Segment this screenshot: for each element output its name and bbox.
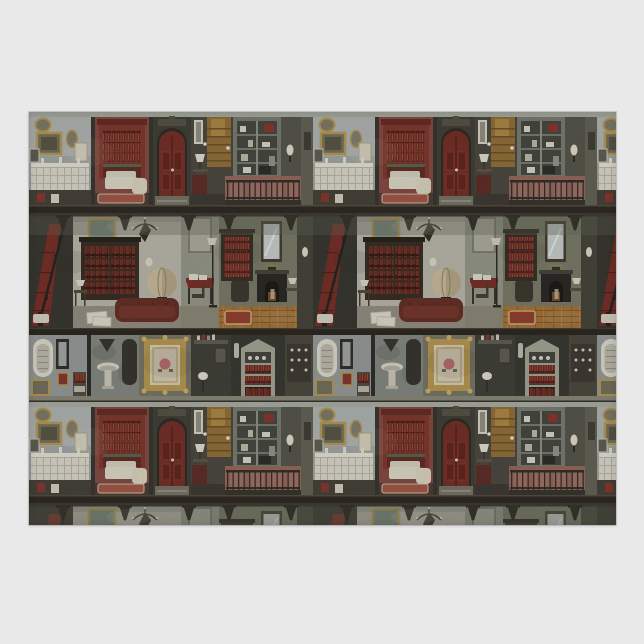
paper-grain-overlay <box>29 112 616 525</box>
product-image-canvas <box>0 0 644 644</box>
pattern-artwork <box>29 112 616 525</box>
page-background: { "meta": { "alt_text": "Sheet of wrappi… <box>0 0 644 644</box>
wrapping-paper-sheet[interactable] <box>29 112 616 525</box>
